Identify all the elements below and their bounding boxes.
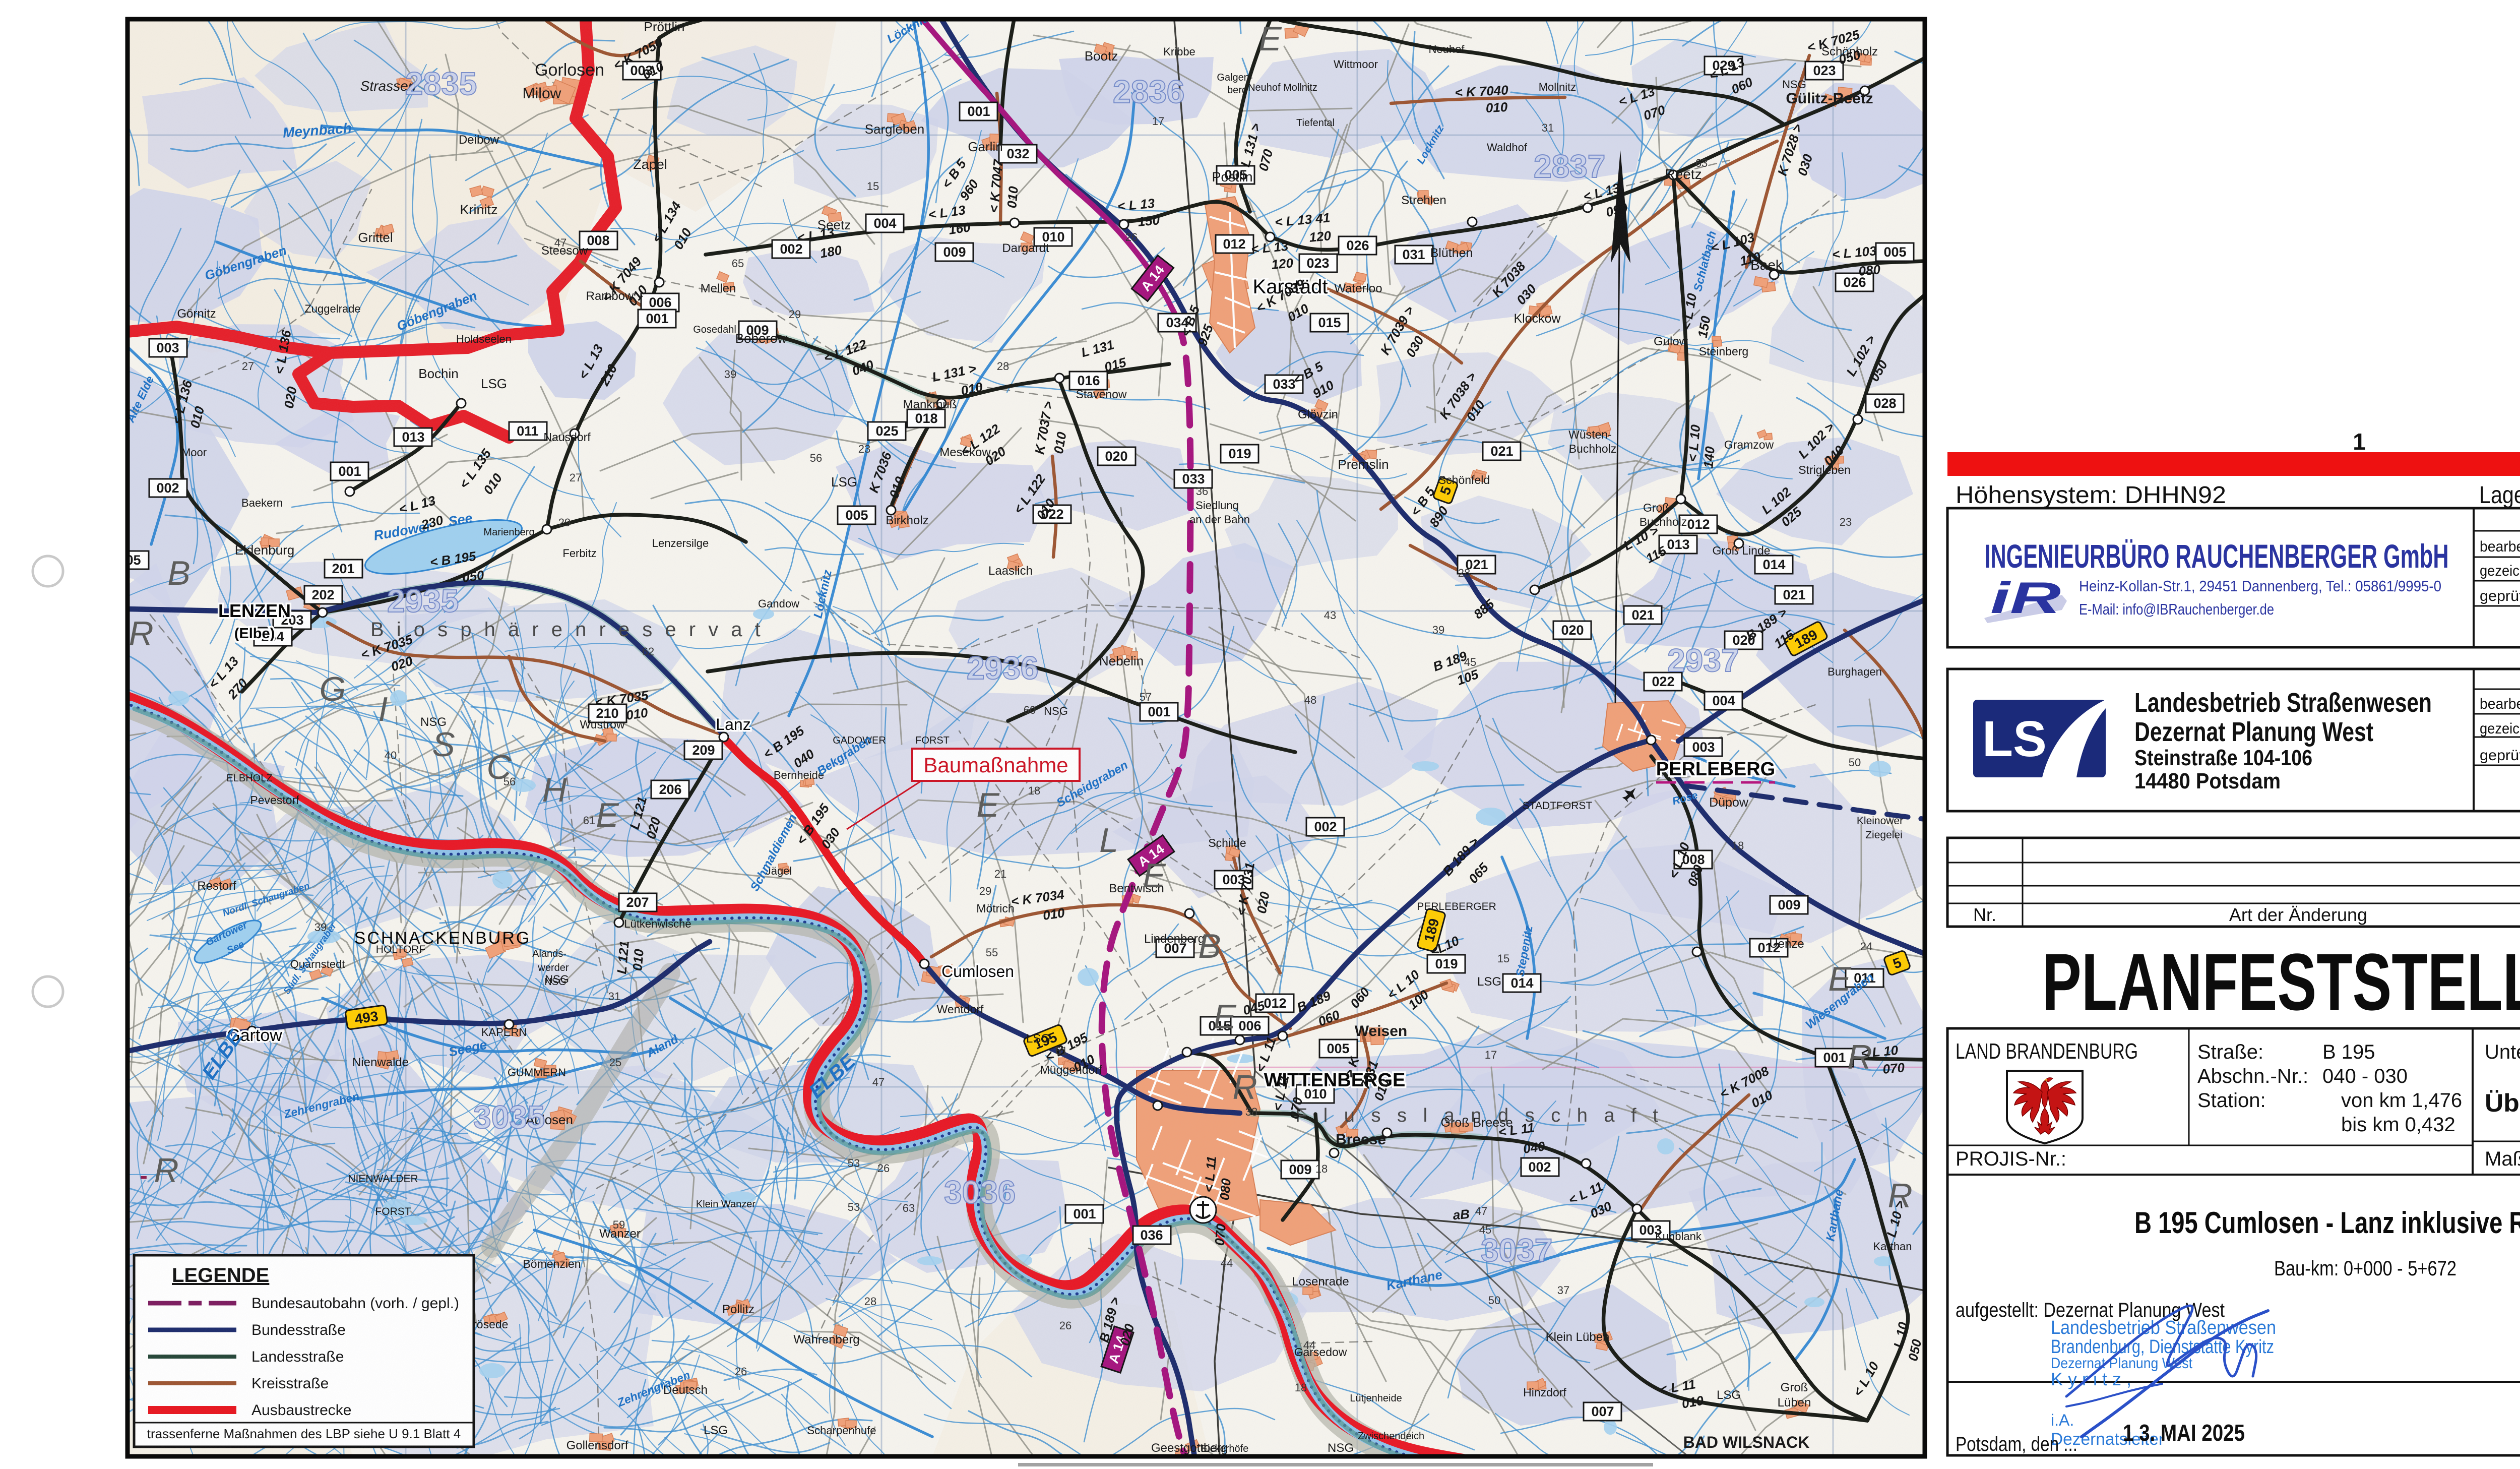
svg-text:Heinz-Kollan-Str.1, 29451 Dann: Heinz-Kollan-Str.1, 29451 Dannenberg, Te… bbox=[2079, 577, 2441, 595]
svg-text:Dezernat Planung West: Dezernat Planung West bbox=[2134, 717, 2373, 747]
svg-text:i.A.: i.A. bbox=[2051, 1411, 2074, 1429]
svg-text:E-Mail: info@IBRauchenberger.d: E-Mail: info@IBRauchenberger.de bbox=[2079, 600, 2274, 618]
svg-text:Landesbetrieb Straßenwesen: Landesbetrieb Straßenwesen bbox=[2134, 688, 2432, 718]
svg-text:von km 1,476: von km 1,476 bbox=[2341, 1089, 2462, 1112]
svg-text:1 3. MAI 2025: 1 3. MAI 2025 bbox=[2123, 1420, 2245, 1446]
svg-text:bis km 0,432: bis km 0,432 bbox=[2341, 1114, 2455, 1136]
svg-text:14480 Potsdam: 14480 Potsdam bbox=[2134, 769, 2281, 793]
svg-text:Höhensystem: DHHN92: Höhensystem: DHHN92 bbox=[1956, 482, 2226, 509]
svg-text:Art der Änderung: Art der Änderung bbox=[2229, 904, 2367, 925]
svg-text:LAND BRANDENBURG: LAND BRANDENBURG bbox=[1956, 1039, 2138, 1064]
svg-text:PLANFESTSTELLUNG: PLANFESTSTELLUNG bbox=[2042, 937, 2520, 1027]
svg-text:Übersichtskarte: Übersichtskarte bbox=[2485, 1089, 2520, 1117]
svg-text:B 195: B 195 bbox=[2322, 1041, 2375, 1063]
svg-text:Maßstab:: Maßstab: bbox=[2485, 1148, 2520, 1170]
svg-text:Bau-km: 0+000 - 5+672: Bau-km: 0+000 - 5+672 bbox=[2274, 1256, 2456, 1280]
svg-text:040 - 030: 040 - 030 bbox=[2322, 1065, 2408, 1087]
svg-text:LS: LS bbox=[1982, 711, 2047, 767]
svg-text:Potsdam, den ...: Potsdam, den ... bbox=[1956, 1433, 2077, 1455]
svg-text:bearbeitet: bearbeitet bbox=[2480, 696, 2520, 712]
svg-text:Lagesystem: ETRS89 / Zone 33: Lagesystem: ETRS89 / Zone 33 bbox=[2479, 482, 2520, 509]
svg-text:geprüft: geprüft bbox=[2480, 747, 2520, 764]
svg-text:1: 1 bbox=[2353, 429, 2366, 455]
svg-text:gezeichnet: gezeichnet bbox=[2480, 563, 2520, 579]
svg-text:Brandenburg, Dienststätte Kyri: Brandenburg, Dienststätte Kyritz bbox=[2051, 1336, 2274, 1358]
svg-text:Nr.: Nr. bbox=[1973, 904, 1996, 925]
svg-text:Straße:: Straße: bbox=[2197, 1041, 2263, 1063]
svg-text:PROJIS-Nr.:: PROJIS-Nr.: bbox=[1956, 1148, 2066, 1170]
svg-text:gezeichnet: gezeichnet bbox=[2480, 720, 2520, 737]
svg-text:Station:: Station: bbox=[2197, 1089, 2266, 1112]
svg-text:Steinstraße 104-106: Steinstraße 104-106 bbox=[2134, 746, 2312, 770]
svg-text:B 195 Cumlosen - Lanz inklusiv: B 195 Cumlosen - Lanz inklusive Radweg bbox=[2134, 1206, 2520, 1240]
svg-text:Abschn.-Nr.:: Abschn.-Nr.: bbox=[2197, 1065, 2308, 1087]
svg-text:Unterlage / Blatt-Nr.:: Unterlage / Blatt-Nr.: bbox=[2485, 1041, 2520, 1063]
svg-text:K y r i t z ,: K y r i t z , bbox=[2051, 1369, 2131, 1389]
svg-text:bearbeitet: bearbeitet bbox=[2480, 538, 2520, 555]
svg-text:INGENIEURBÜRO RAUCHENBERGER Gm: INGENIEURBÜRO RAUCHENBERGER GmbH bbox=[1985, 537, 2449, 575]
svg-text:geprüft: geprüft bbox=[2480, 588, 2520, 604]
